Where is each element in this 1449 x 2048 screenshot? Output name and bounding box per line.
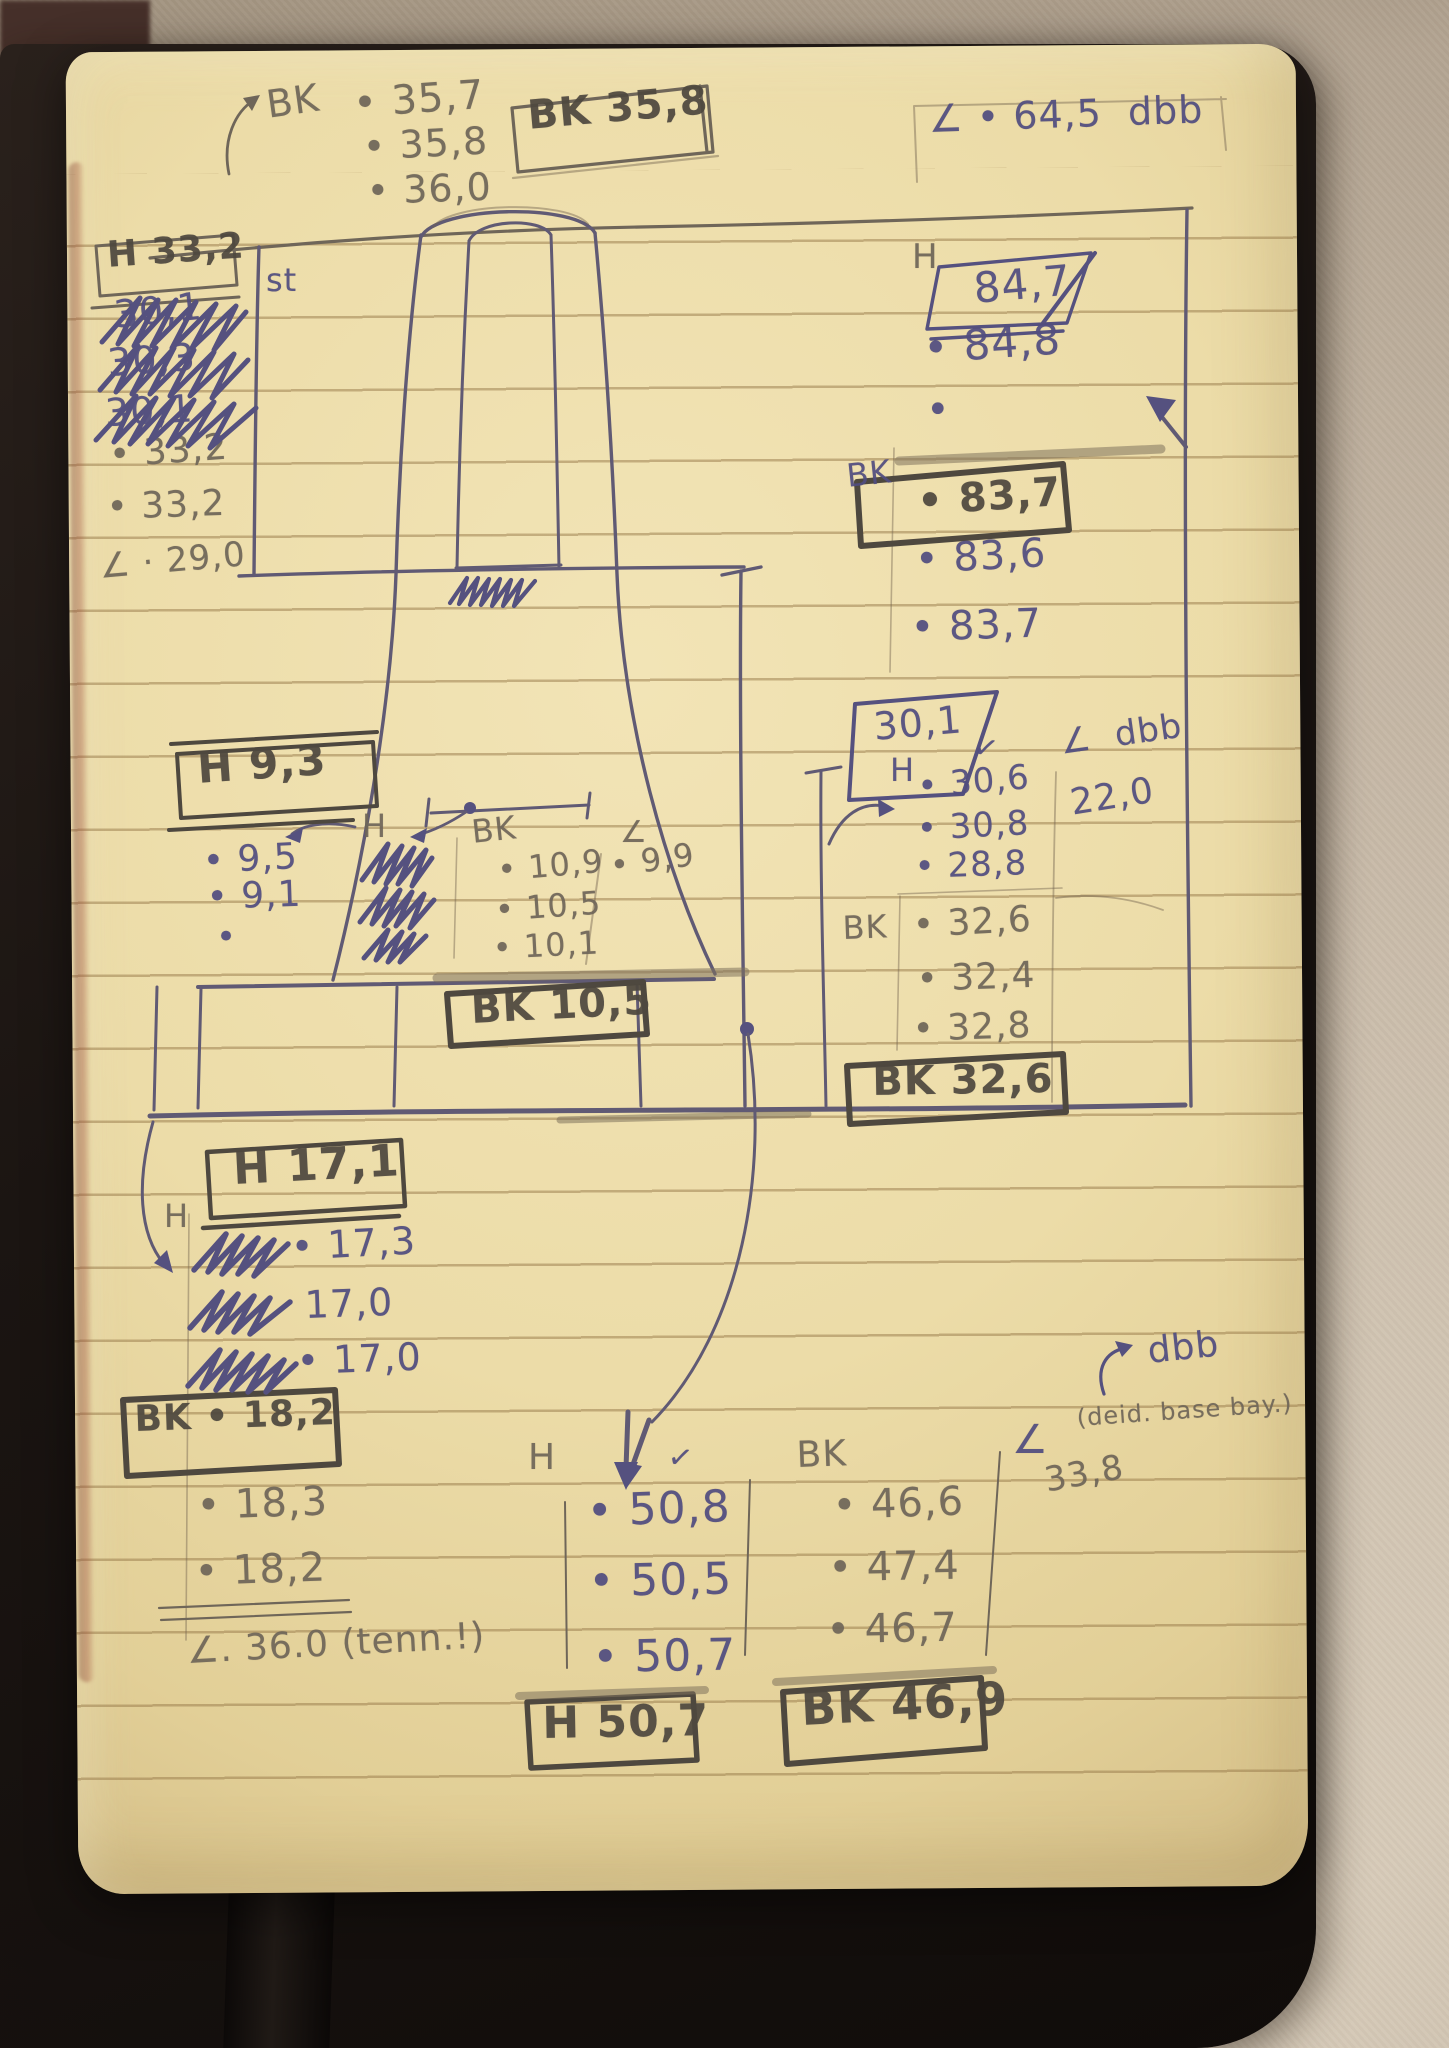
scribble-layer <box>0 0 1449 2048</box>
strike-through-scribbles <box>96 298 434 1392</box>
photo-scene: BK• 35,7• 35,8• 36,0BK 35,8∠ • 64,5 dbbH… <box>0 0 1449 2048</box>
